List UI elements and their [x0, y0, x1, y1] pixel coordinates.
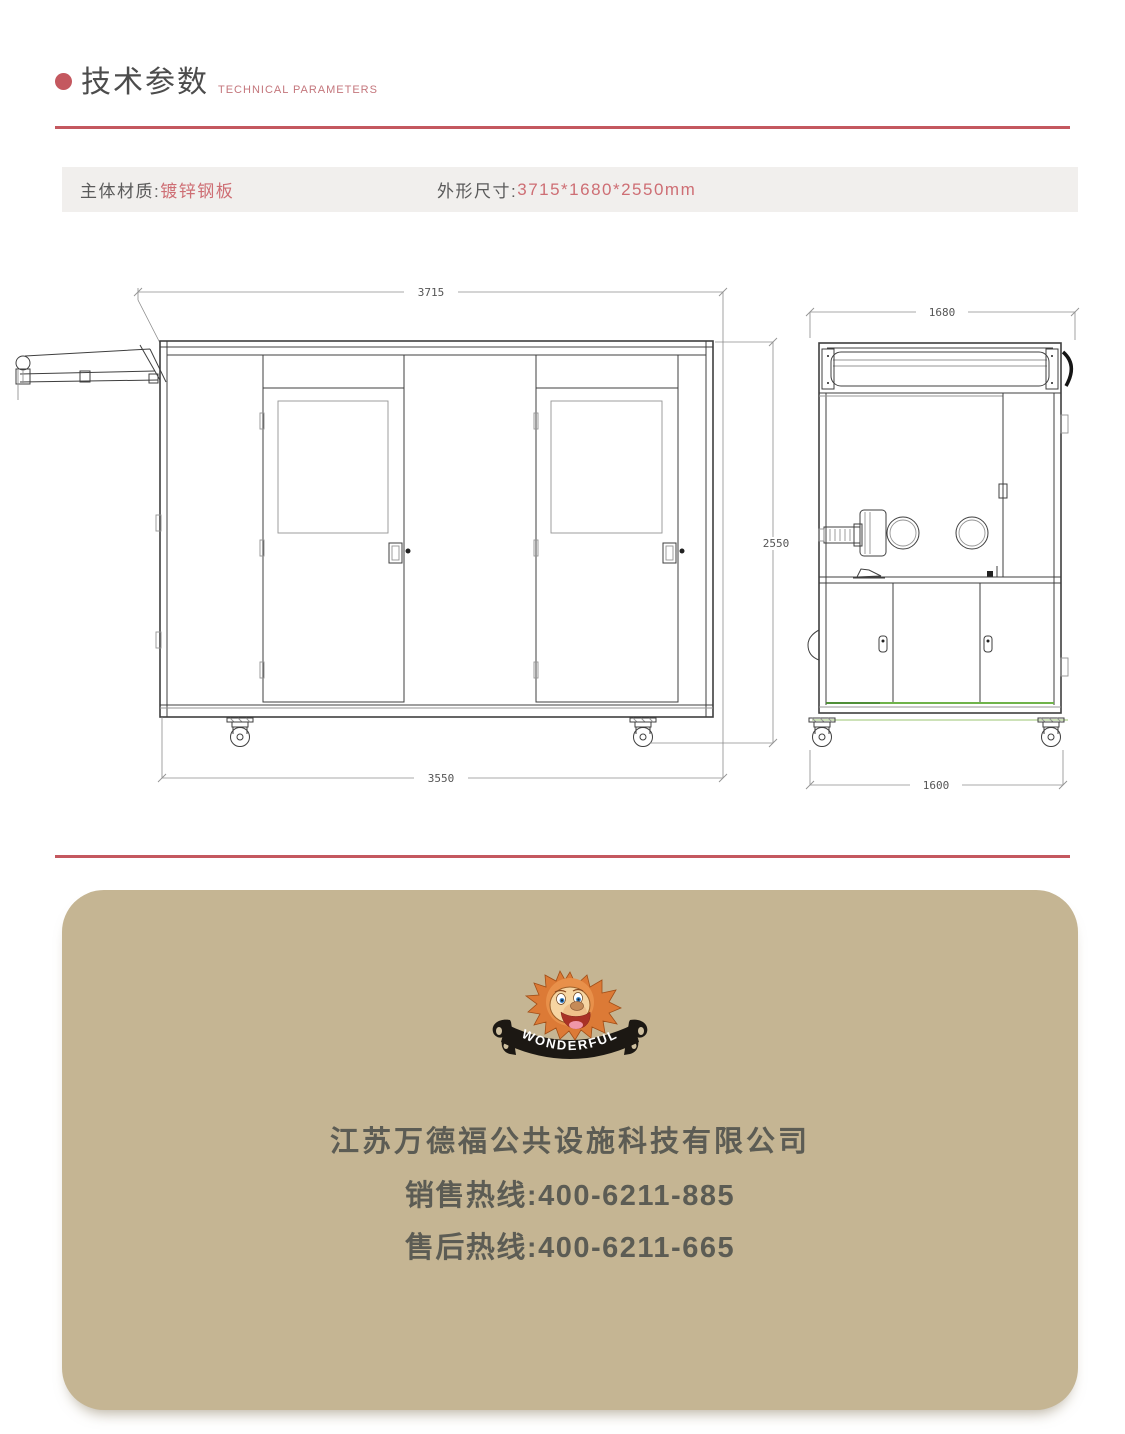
svg-text:3550: 3550 — [428, 772, 455, 785]
svg-text:1600: 1600 — [923, 779, 950, 792]
side-interior — [819, 393, 1007, 578]
side-elevation-drawing: 1680 — [806, 306, 1079, 792]
front-elevation-drawing: 3715 — [16, 286, 800, 785]
door-right — [534, 355, 685, 702]
door-right-lock — [663, 543, 685, 563]
svg-text:1680: 1680 — [929, 306, 956, 319]
rolled-awning — [819, 348, 1071, 396]
svg-text:2550: 2550 — [763, 537, 790, 550]
sales-hotline: 销售热线:400-6211-885 — [62, 1172, 1078, 1214]
awning-crank-hook — [1063, 352, 1071, 386]
door-left-lock — [389, 543, 411, 563]
awning-arm — [16, 345, 166, 400]
dim-front-width: 3715 — [134, 286, 727, 778]
svg-text:3715: 3715 — [418, 286, 445, 299]
front-casters — [227, 718, 656, 747]
wonderful-logo: WONDERFUL — [490, 968, 650, 1082]
side-wall-pipe — [808, 630, 819, 660]
side-cabinets — [812, 577, 1068, 720]
side-casters — [809, 718, 1064, 747]
footer-card: WONDERFUL 江苏万德福公共设施科技有限公司 销售热线:400-6211-… — [62, 890, 1078, 1410]
page: 技术参数 TECHNICAL PARAMETERS 主体材质: 镀锌钢板 外形尺… — [0, 0, 1125, 1434]
company-name: 江苏万德福公共设施科技有限公司 — [62, 1118, 1078, 1160]
divider-bottom — [55, 855, 1070, 858]
dim-side-base: 1600 — [806, 750, 1067, 792]
door-left — [260, 355, 411, 702]
aftersales-hotline: 售后热线:400-6211-665 — [62, 1224, 1078, 1266]
dim-side-width: 1680 — [806, 306, 1079, 340]
